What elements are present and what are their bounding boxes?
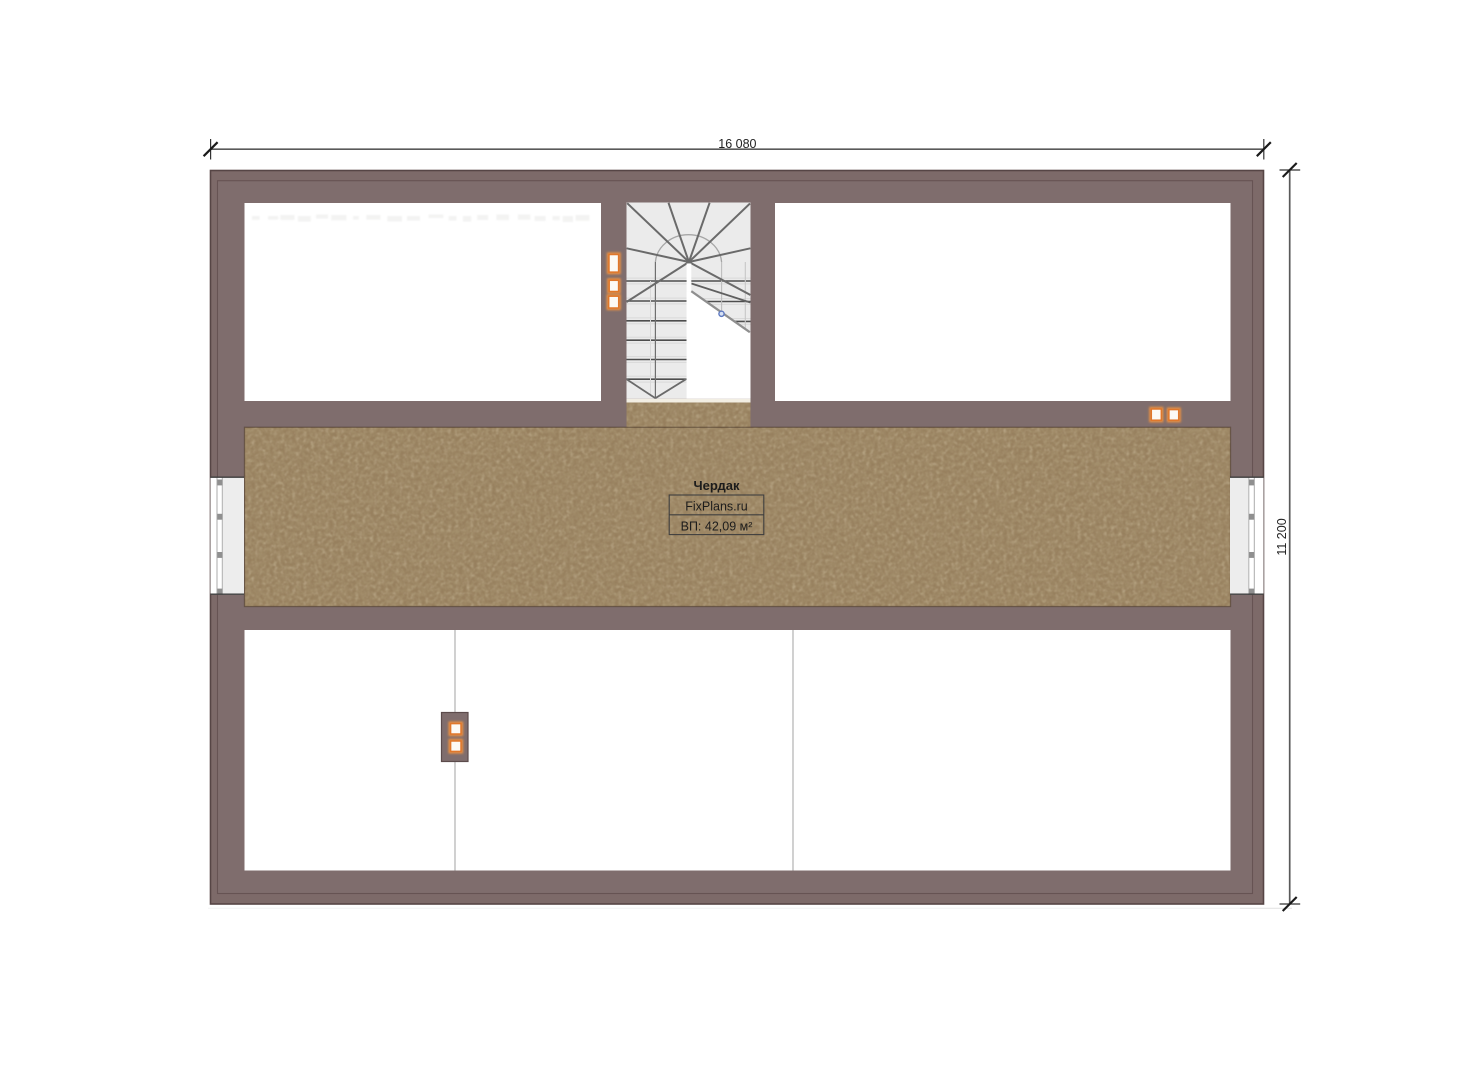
svg-text:ВП: 42,09 м²: ВП: 42,09 м²: [681, 519, 753, 533]
svg-text:11 200: 11 200: [1275, 518, 1289, 555]
svg-text:Чердак: Чердак: [694, 478, 740, 493]
svg-text:FixPlans.ru: FixPlans.ru: [685, 499, 748, 513]
svg-text:16 080: 16 080: [718, 137, 756, 151]
